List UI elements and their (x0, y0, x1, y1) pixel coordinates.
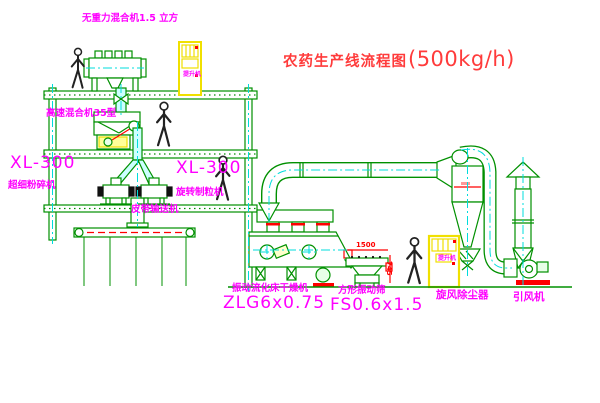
belt-conveyor-label: 皮带输送机 (131, 205, 179, 215)
fluid-bed-dryer (249, 203, 357, 287)
granulator-name-label: 旋转制粒机 (176, 188, 224, 198)
roof-bucket-elevator (179, 42, 201, 95)
induced-draft-fan (504, 259, 550, 285)
cad-drawing-viewport: 农药生产线流程图 (500kg/h) 无重力混合机1.5 立方 高速混合机35型… (0, 0, 600, 403)
mill-model-label: XL-300 (10, 155, 75, 172)
main-duct (269, 162, 437, 205)
dryer-model-label: ZLG6x0.75 (223, 295, 325, 312)
granulators (98, 160, 172, 227)
granulator-model-label: XL-300 (176, 160, 241, 177)
sieve-height-dimension: 745 (385, 261, 392, 276)
person-figure (407, 238, 421, 283)
gravity-mixer-label: 无重力混合机1.5 立方 (82, 14, 178, 24)
mill-name-label: 超细粉碎机 (8, 181, 56, 191)
gravity-mixer (84, 51, 146, 91)
drawing-title: 农药生产线流程图 (500kg/h) (283, 47, 515, 71)
cyclone-label: 旋风除尘器 (436, 290, 489, 301)
person-figure (72, 48, 84, 87)
sieve-length-dimension: 1500 (356, 242, 375, 249)
ground-elevator-label: 提升机 (438, 256, 456, 262)
title-capacity: (500kg/h) (408, 47, 515, 71)
roof-elevator-label: 提升机 (183, 72, 201, 78)
high-speed-mixer-label: 高速混合机35型 (46, 109, 116, 119)
sieve-model-label: FS0.6x1.5 (330, 297, 423, 314)
fan-label: 引风机 (513, 292, 545, 303)
person-figure (157, 102, 170, 145)
title-text: 农药生产线流程图 (283, 50, 407, 71)
belt-conveyor (74, 228, 195, 286)
